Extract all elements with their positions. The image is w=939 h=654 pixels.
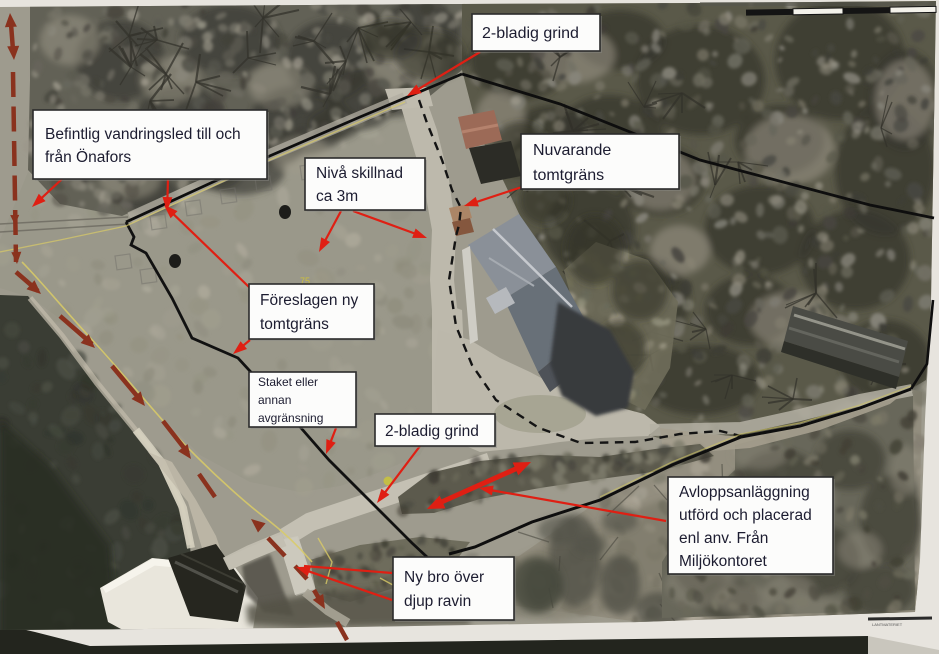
svg-text:avgränsning: avgränsning bbox=[258, 411, 323, 425]
svg-text:Nivå skillnad: Nivå skillnad bbox=[316, 165, 403, 182]
svg-text:Befintlig vandringsled till oc: Befintlig vandringsled till och bbox=[45, 126, 241, 143]
svg-text:utförd och placerad: utförd och placerad bbox=[679, 507, 812, 524]
svg-text:från Önafors: från Önafors bbox=[45, 148, 131, 166]
svg-text:tomtgräns: tomtgräns bbox=[533, 167, 604, 184]
svg-text:Miljökontoret: Miljökontoret bbox=[679, 553, 768, 570]
svg-text:enl anv. Från: enl anv. Från bbox=[679, 530, 768, 547]
svg-text:LANTMATERIET: LANTMATERIET bbox=[872, 622, 903, 627]
svg-text:ca 3m: ca 3m bbox=[316, 188, 358, 205]
svg-text:annan: annan bbox=[258, 393, 291, 407]
svg-text:2-bladig grind: 2-bladig grind bbox=[482, 25, 579, 42]
svg-text:Föreslagen ny: Föreslagen ny bbox=[260, 292, 358, 309]
svg-text:Avloppsanläggning: Avloppsanläggning bbox=[679, 484, 810, 501]
svg-text:Nuvarande: Nuvarande bbox=[533, 142, 611, 159]
svg-text:Staket eller: Staket eller bbox=[258, 375, 318, 389]
svg-text:djup ravin: djup ravin bbox=[404, 593, 471, 610]
svg-text:Ny bro över: Ny bro över bbox=[404, 569, 484, 586]
svg-text:tomtgräns: tomtgräns bbox=[260, 316, 329, 333]
svg-text:2-bladig grind: 2-bladig grind bbox=[385, 423, 479, 440]
